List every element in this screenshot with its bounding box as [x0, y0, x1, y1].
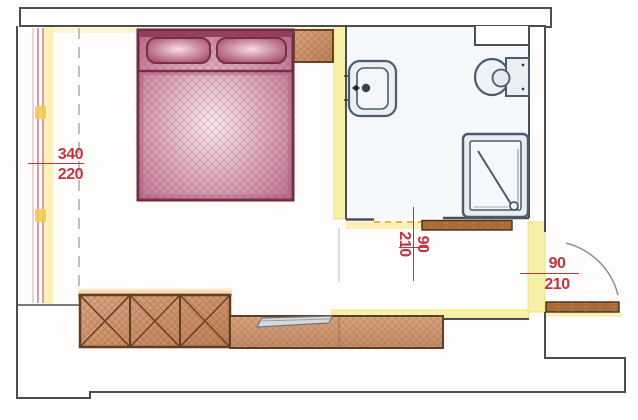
dim-bathroom-door-tick — [399, 247, 427, 248]
bathroom-top-notch-fill — [475, 26, 529, 45]
window-handle-lower — [35, 209, 46, 222]
pillow-right — [217, 38, 286, 63]
floor-plan-drawing — [0, 0, 638, 420]
toilet — [475, 58, 529, 96]
sink — [344, 61, 396, 116]
entrance-threshold-strip — [546, 312, 622, 317]
top-wall-band — [20, 8, 551, 27]
cistern-bolt-top — [522, 64, 525, 67]
pillow-left — [147, 38, 210, 63]
shower-drain — [510, 202, 518, 210]
shower — [463, 134, 528, 217]
window-handle-upper — [35, 106, 46, 119]
entrance-door-leaf — [546, 302, 619, 312]
bathroom-door-leaf — [422, 221, 512, 231]
nightstand — [294, 30, 333, 62]
dim-window-width: 340 — [30, 146, 83, 163]
dim-bathroom-door-width: 90 — [413, 207, 431, 281]
dim-bathroom-door-height: 210 — [396, 207, 413, 281]
dim-window-height: 220 — [30, 166, 83, 183]
cistern-bolt-bottom — [522, 88, 525, 91]
dim-bathroom-door: 90 210 — [396, 207, 431, 281]
floor-plan: 340 220 90 210 90 210 — [0, 0, 638, 420]
yellow-highlight-walls — [44, 26, 622, 318]
toilet-flush-button — [493, 70, 510, 87]
desk — [230, 316, 443, 348]
dim-entrance-height: 210 — [534, 276, 580, 293]
nightstand-texture — [294, 30, 333, 62]
bathroom-partition-strip — [334, 26, 346, 219]
bed — [138, 30, 293, 200]
headboard — [140, 31, 291, 37]
sink-basin — [357, 68, 388, 109]
dim-entrance-width: 90 — [534, 255, 580, 272]
sink-faucet — [362, 84, 370, 92]
wardrobe — [78, 287, 232, 347]
dim-entrance-bar — [520, 273, 579, 274]
dim-window-bar — [28, 163, 84, 164]
